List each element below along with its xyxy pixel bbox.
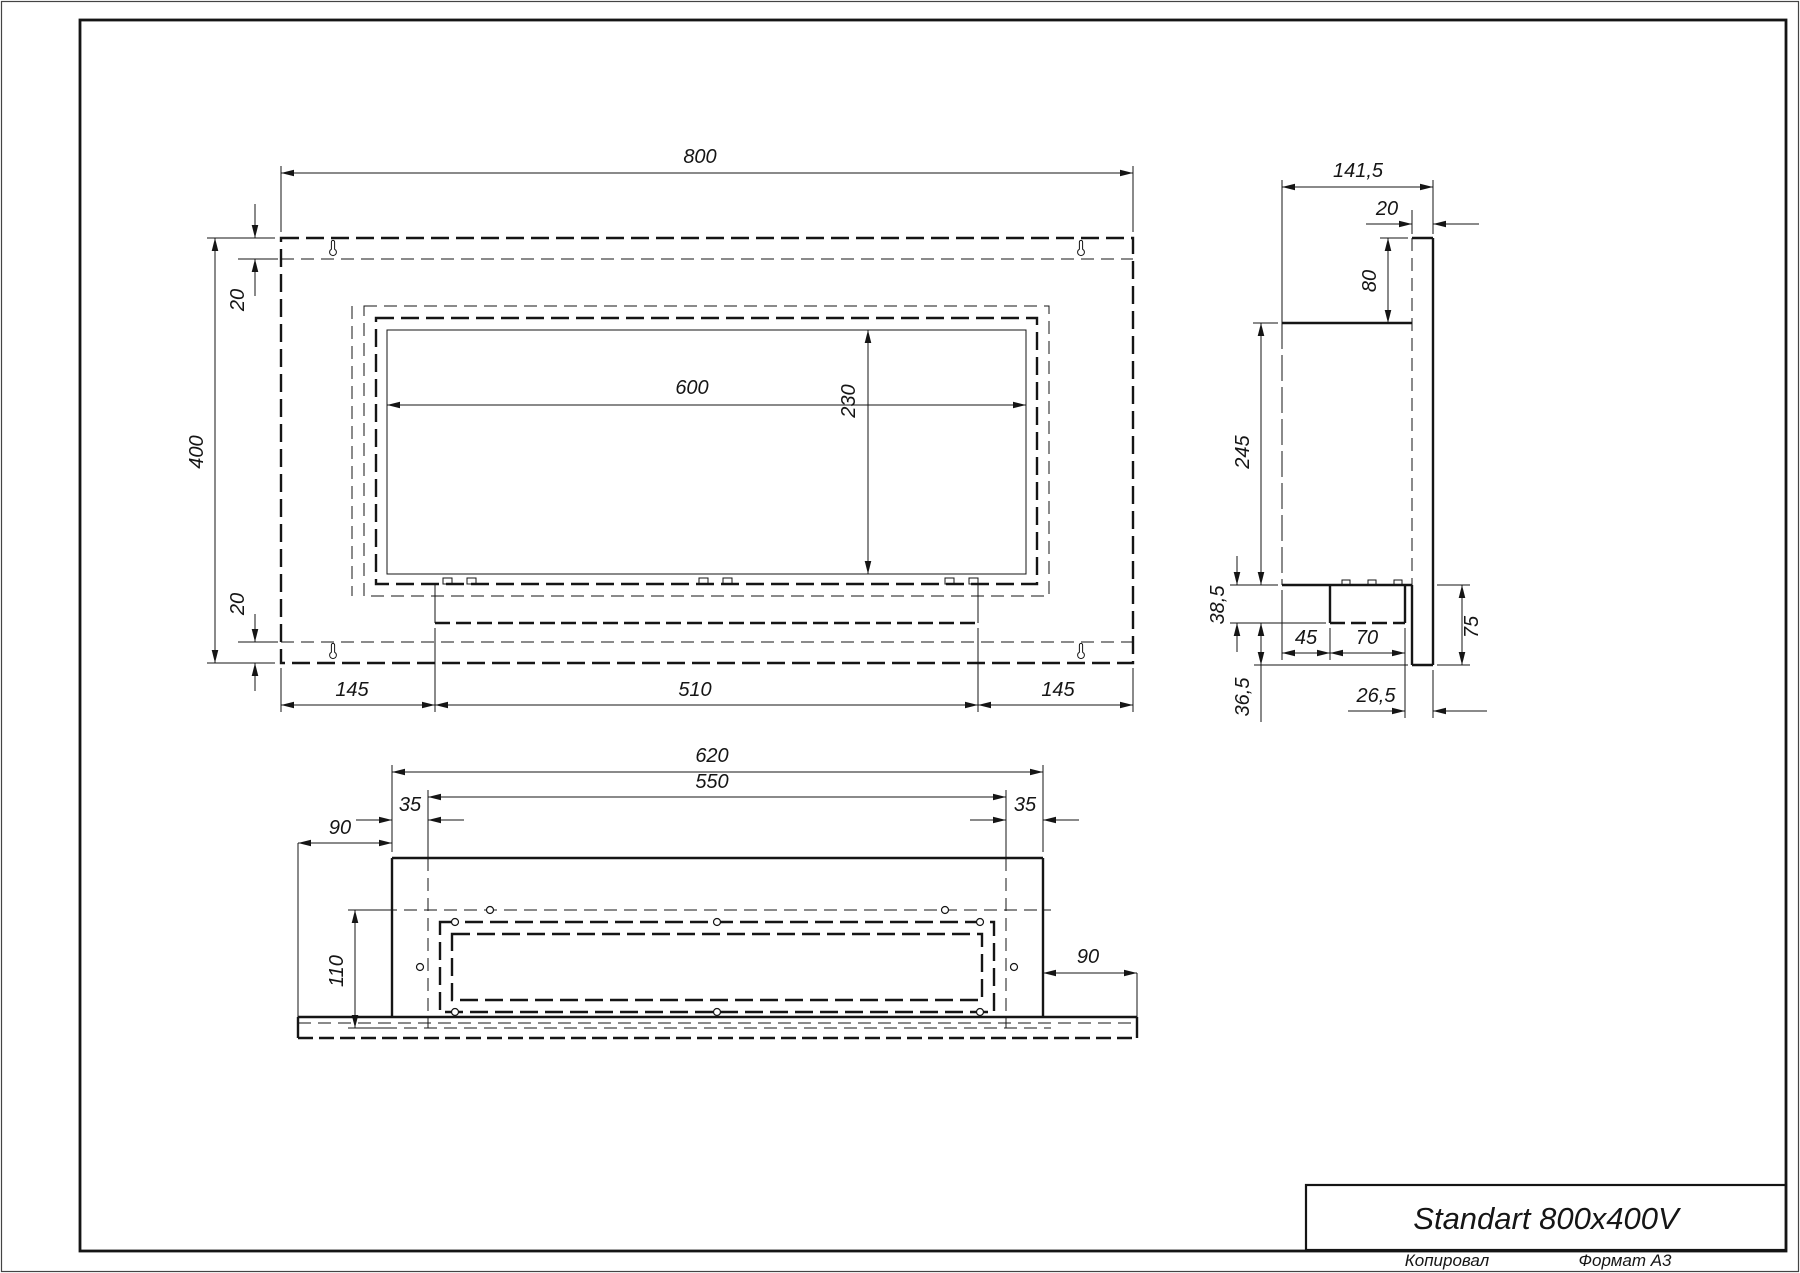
dim-front-height: 400 [186, 435, 208, 468]
dim-front-margin-top: 20 [227, 289, 249, 312]
dim-bottom-flange-right: 90 [1077, 946, 1099, 968]
dim-bottom-depth: 110 [326, 955, 348, 987]
dim-side-plate-thickness: 20 [1375, 198, 1398, 220]
title-block-product-name: Standart 800x400V [1413, 1201, 1682, 1236]
dim-side-back-offset: 26,5 [1356, 685, 1397, 707]
dim-bottom-margin-right: 35 [1014, 794, 1037, 816]
dim-bottom-body-width: 620 [695, 745, 728, 767]
drawing-frame [2, 2, 1799, 1272]
dim-side-lower-drop: 36,5 [1232, 677, 1254, 717]
side-view: 141,5 20 80 245 38,5 36,5 45 70 [1207, 160, 1487, 722]
title-block: Standart 800x400V Копировал Формат А3 [1306, 1185, 1786, 1270]
dim-bottom-margin-left: 35 [399, 794, 422, 816]
dim-front-opening-width: 600 [675, 377, 708, 399]
dim-side-tray-front: 45 [1295, 627, 1318, 649]
dim-front-bottom-right: 145 [1041, 679, 1075, 701]
dim-bottom-mount-width: 550 [695, 771, 728, 793]
dim-side-tray-width: 70 [1356, 627, 1378, 649]
dim-front-bottom-mid: 510 [678, 679, 711, 701]
dim-side-plate-bottom: 75 [1461, 615, 1483, 638]
footer-format-label: Формат А3 [1578, 1251, 1672, 1270]
drawing-sheet: 800 400 20 20 600 230 145 510 145 [0, 0, 1800, 1273]
dim-side-plate-top: 80 [1359, 270, 1381, 292]
front-view: 800 400 20 20 600 230 145 510 145 [186, 146, 1133, 712]
bottom-view: 620 550 35 35 90 110 90 [298, 745, 1137, 1038]
dim-side-tray-drop: 38,5 [1207, 585, 1229, 625]
dim-side-body-height: 245 [1232, 434, 1254, 469]
dim-front-bottom-left: 145 [335, 679, 369, 701]
dim-front-margin-bottom: 20 [227, 593, 249, 616]
dim-front-opening-height: 230 [838, 384, 860, 418]
dim-front-width: 800 [683, 146, 716, 168]
footer-copied-label: Копировал [1405, 1251, 1490, 1270]
dim-bottom-flange-left: 90 [329, 817, 351, 839]
dim-side-depth: 141,5 [1333, 160, 1384, 182]
drawing-canvas: 800 400 20 20 600 230 145 510 145 [0, 0, 1800, 1273]
